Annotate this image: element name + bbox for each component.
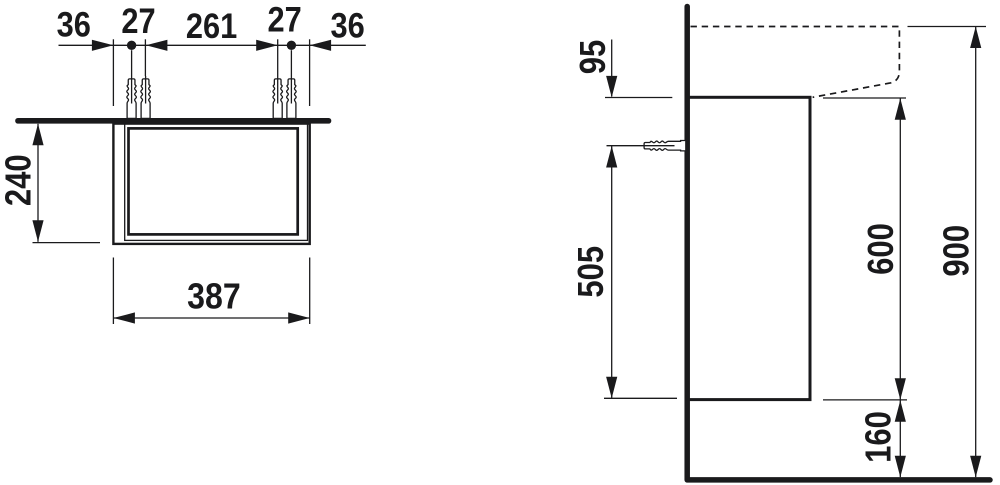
svg-text:261: 261 [186, 6, 237, 45]
svg-text:36: 36 [57, 5, 91, 44]
svg-text:600: 600 [861, 223, 902, 275]
svg-text:160: 160 [858, 411, 899, 463]
svg-text:36: 36 [330, 6, 364, 45]
svg-text:900: 900 [936, 225, 977, 277]
svg-text:240: 240 [0, 154, 39, 206]
svg-text:27: 27 [267, 0, 301, 39]
svg-text:95: 95 [573, 40, 614, 75]
svg-text:505: 505 [571, 246, 612, 298]
svg-text:387: 387 [187, 277, 241, 317]
svg-text:27: 27 [121, 1, 155, 40]
